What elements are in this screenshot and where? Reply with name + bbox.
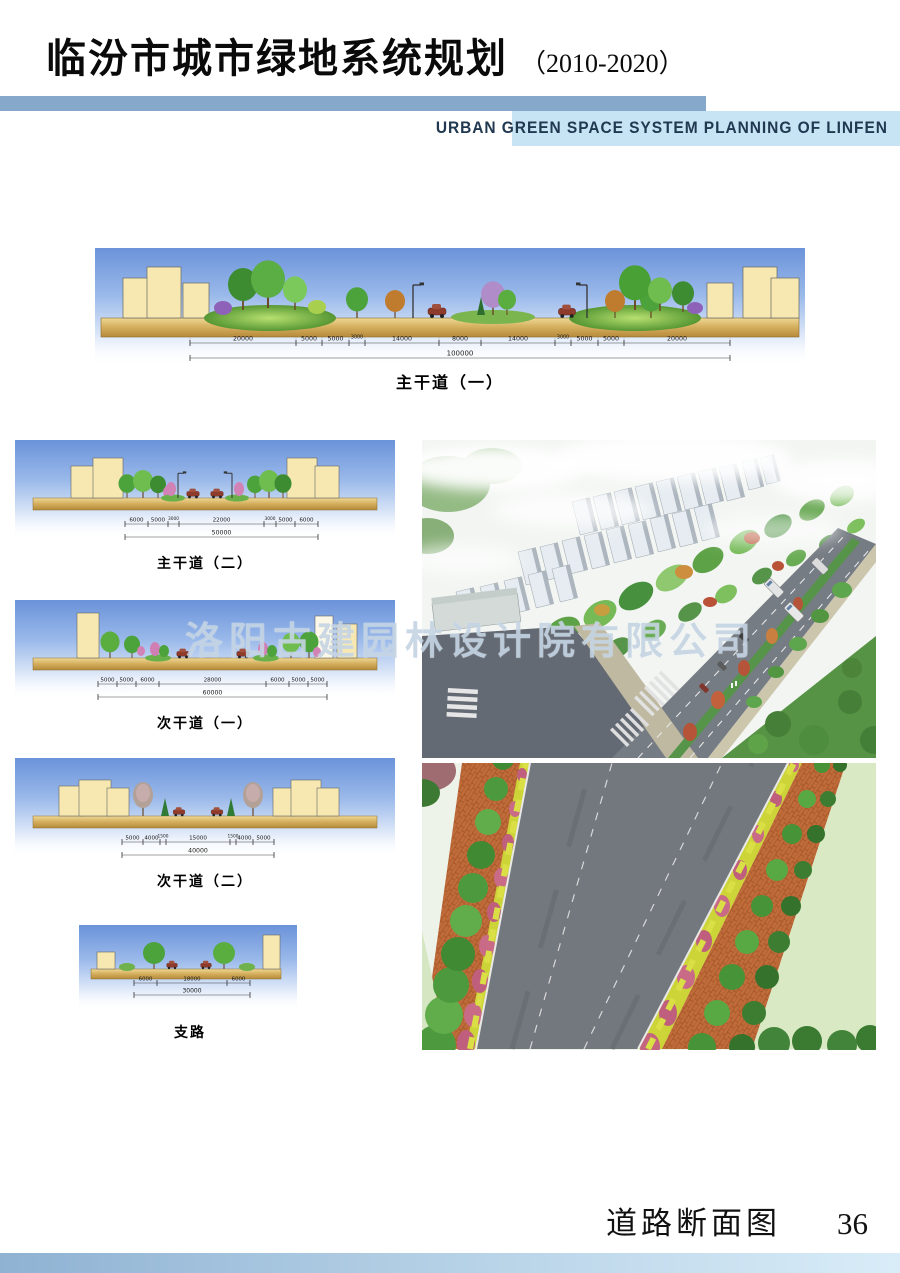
render-photo-aerial [422,440,876,758]
dim-label: 4000 [237,836,252,842]
dim-label: 3000 [351,335,363,341]
section-label: 支路 [75,1022,305,1042]
title-years: （2010-2020） [520,49,685,78]
cross-section-branch-road: 6000 18000 6000 30000 支路 [75,925,305,1042]
road-slab [33,816,377,828]
dim-label: 6000 [270,678,285,684]
dim-label: 14000 [392,336,412,343]
bottom-bar [0,1253,900,1273]
section-label: 次干道（二） [15,871,395,891]
subtitle-text: URBAN GREEN SPACE SYSTEM PLANNING OF LIN… [436,111,888,146]
dim-label: 6000 [140,678,155,684]
cross-section-drawing: 20000 5000 5000 3000 14000 8000 14000 30… [95,248,805,368]
dim-label: 5000 [327,336,343,343]
dim-label: 5000 [278,518,293,524]
dim-total: 40000 [188,848,208,855]
dim-label: 15000 [189,836,207,842]
dim-label: 6000 [299,518,314,524]
dim-label: 3000 [168,516,179,522]
dim-label: 20000 [667,336,687,343]
dim-label: 6000 [232,977,246,983]
street-render-illustration [422,763,876,1050]
road-slab [33,498,377,510]
dim-label: 5000 [291,678,306,684]
cross-section-drawing: 6000 18000 6000 30000 [75,925,305,1021]
dim-label: 5000 [125,836,140,842]
dim-label: 5000 [119,678,134,684]
dim-label: 20000 [233,336,253,343]
dim-label: 6000 [129,518,144,524]
page-footer: 道路断面图 36 [606,1198,868,1243]
aerial-render-illustration [422,440,876,758]
dim-label: 3000 [265,516,276,522]
dim-label: 22000 [213,518,231,524]
section-label: 次干道（一） [15,713,395,733]
subtitle-strip: URBAN GREEN SPACE SYSTEM PLANNING OF LIN… [512,111,900,146]
document-page: 临汾市城市绿地系统规划 （2010-2020） URBAN GREEN SPAC… [0,0,900,1273]
dim-total: 60000 [203,690,223,697]
dim-total: 30000 [182,988,201,995]
page-number: 36 [837,1206,868,1242]
section-label: 主干道（一） [95,369,805,393]
footer-title: 道路断面图 [606,1198,781,1243]
header-bar [0,96,706,111]
cross-section-drawing: 6000 5000 3000 22000 3000 5000 6000 5000… [15,440,395,552]
dim-label: 18000 [183,977,201,983]
dim-label: 28000 [204,678,222,684]
cross-section-secondary-road-2: 5000 4000 1500 15000 1500 4000 5000 4000… [15,758,395,891]
cross-section-main-road-1: 20000 5000 5000 3000 14000 8000 14000 30… [95,248,805,393]
dim-label: 5000 [603,336,619,343]
cross-section-drawing: 5000 4000 1500 15000 1500 4000 5000 4000… [15,758,395,870]
dim-label: 5000 [310,678,325,684]
dim-label: 5000 [301,336,317,343]
render-photo-street [422,763,876,1050]
dim-label: 3000 [557,335,569,341]
cross-section-main-road-2: 6000 5000 3000 22000 3000 5000 6000 5000… [15,440,395,573]
dim-label: 5000 [576,336,592,343]
page-title: 临汾市城市绿地系统规划 （2010-2020） [46,26,685,84]
section-label: 主干道（二） [15,553,395,573]
dim-label: 1500 [158,834,169,840]
watermark: 洛阳古建园林设计院有限公司 [185,610,757,665]
dim-label: 5000 [100,678,115,684]
dim-total: 100000 [447,350,474,358]
title-text: 临汾市城市绿地系统规划 [46,36,508,81]
dim-label: 5000 [151,518,166,524]
dim-total: 50000 [212,530,232,537]
dim-label: 8000 [452,336,468,343]
dim-label: 6000 [139,977,153,983]
dim-label: 5000 [256,836,271,842]
street-scene [422,763,876,1050]
dim-label: 14000 [508,336,528,343]
